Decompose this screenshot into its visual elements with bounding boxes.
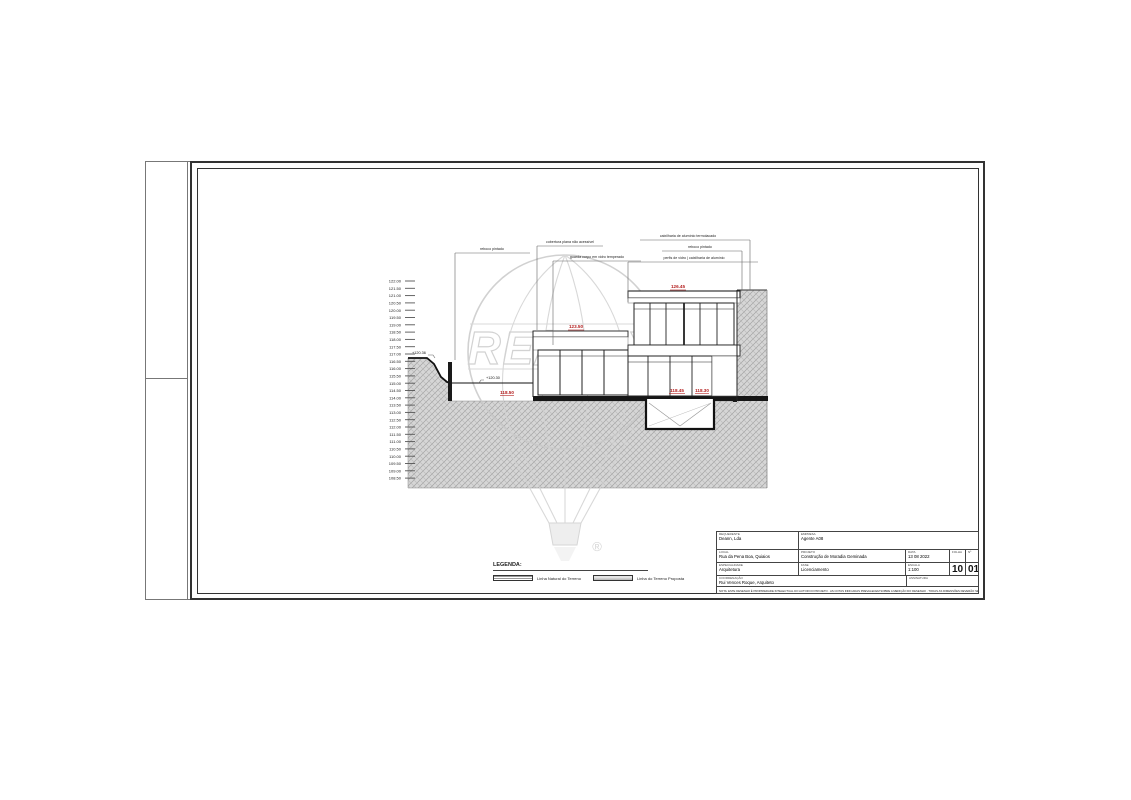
tb-coordenacao: COORDENAÇÃO Rui Vences Roque, Arquiteto: [717, 576, 907, 586]
legend-label-natural: Linha Natural do Terreno: [537, 576, 581, 581]
tb-local: LOCAL Rua da Pena Boa, Quiaios: [717, 550, 799, 562]
drawing-sheet-page: RE/MAX ® 122.00121.50121.00120.50120.001…: [0, 0, 1131, 800]
tb-disclaimer: NOTA: ESTE DESENHO É PROPRIEDADE INTELEC…: [717, 587, 978, 595]
tb-especialidade: ESPECIALIDADE Arquitetura: [717, 563, 799, 575]
legend: LEGENDA: Linha Natural do Terreno Linha …: [493, 562, 693, 581]
tb-data: DATA 13 08 2022: [906, 550, 950, 562]
tb-num-header: Nº: [966, 550, 978, 562]
tb-folha-number: 10: [950, 563, 966, 575]
sheet-left-strip-edge: [187, 161, 188, 600]
legend-rule: [493, 570, 648, 571]
tb-folha-header: FOLHA: [950, 550, 966, 562]
tb-empresa: EMPRESA Agente A08: [799, 532, 978, 549]
tb-sheet-number: 01: [966, 563, 978, 575]
title-block: REQUERENTE Deann, Lda EMPRESA Agente A08…: [716, 531, 979, 594]
legend-title: LEGENDA:: [493, 562, 693, 568]
tb-escala: ESCALA 1:100: [906, 563, 950, 575]
legend-label-proposed: Linha do Terreno Proposta: [637, 576, 684, 581]
legend-swatch-natural-terrain-icon: [493, 575, 533, 581]
sheet-left-strip-divider: [145, 378, 187, 379]
tb-projeto: PROJETO Construção de Moradia Geminada: [799, 550, 906, 562]
tb-fase: FASE Licenciamento: [799, 563, 906, 575]
tb-requerente: REQUERENTE Deann, Lda: [717, 532, 799, 549]
legend-swatch-proposed-terrain-icon: [593, 575, 633, 581]
tb-assinatura: ASSINATURA: [907, 576, 978, 586]
